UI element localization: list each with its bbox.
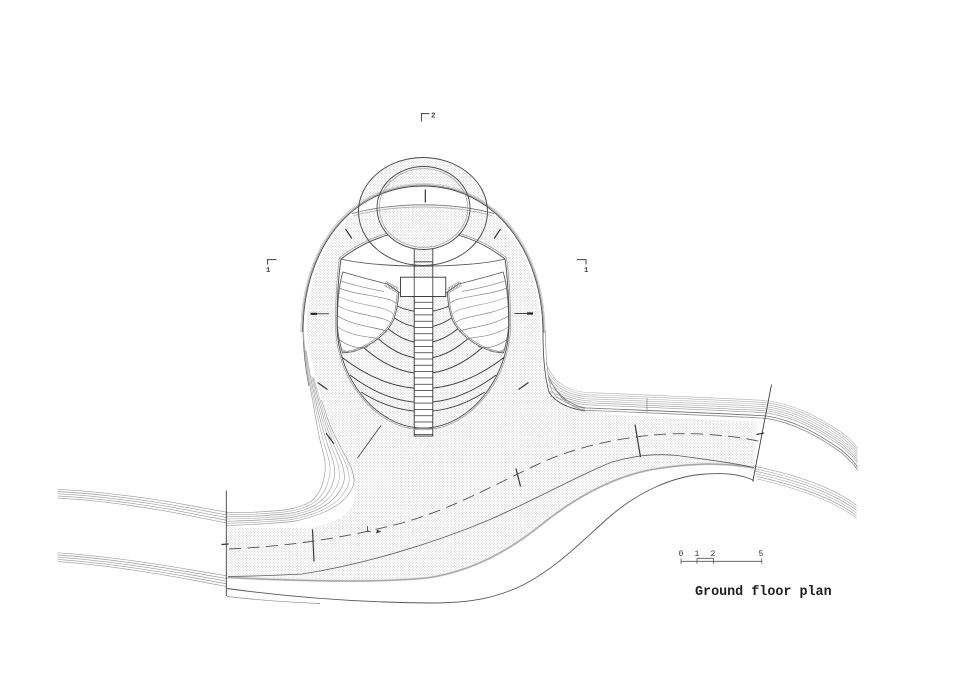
svg-text:Ground floor plan: Ground floor plan — [695, 585, 832, 600]
svg-text:1: 1 — [266, 267, 271, 275]
svg-text:2: 2 — [431, 113, 436, 121]
svg-text:2: 2 — [711, 550, 716, 559]
svg-text:0: 0 — [679, 550, 684, 559]
svg-text:1: 1 — [584, 267, 589, 275]
svg-text:5: 5 — [759, 550, 764, 559]
svg-text:L: L — [366, 525, 371, 535]
svg-text:1: 1 — [695, 550, 700, 559]
